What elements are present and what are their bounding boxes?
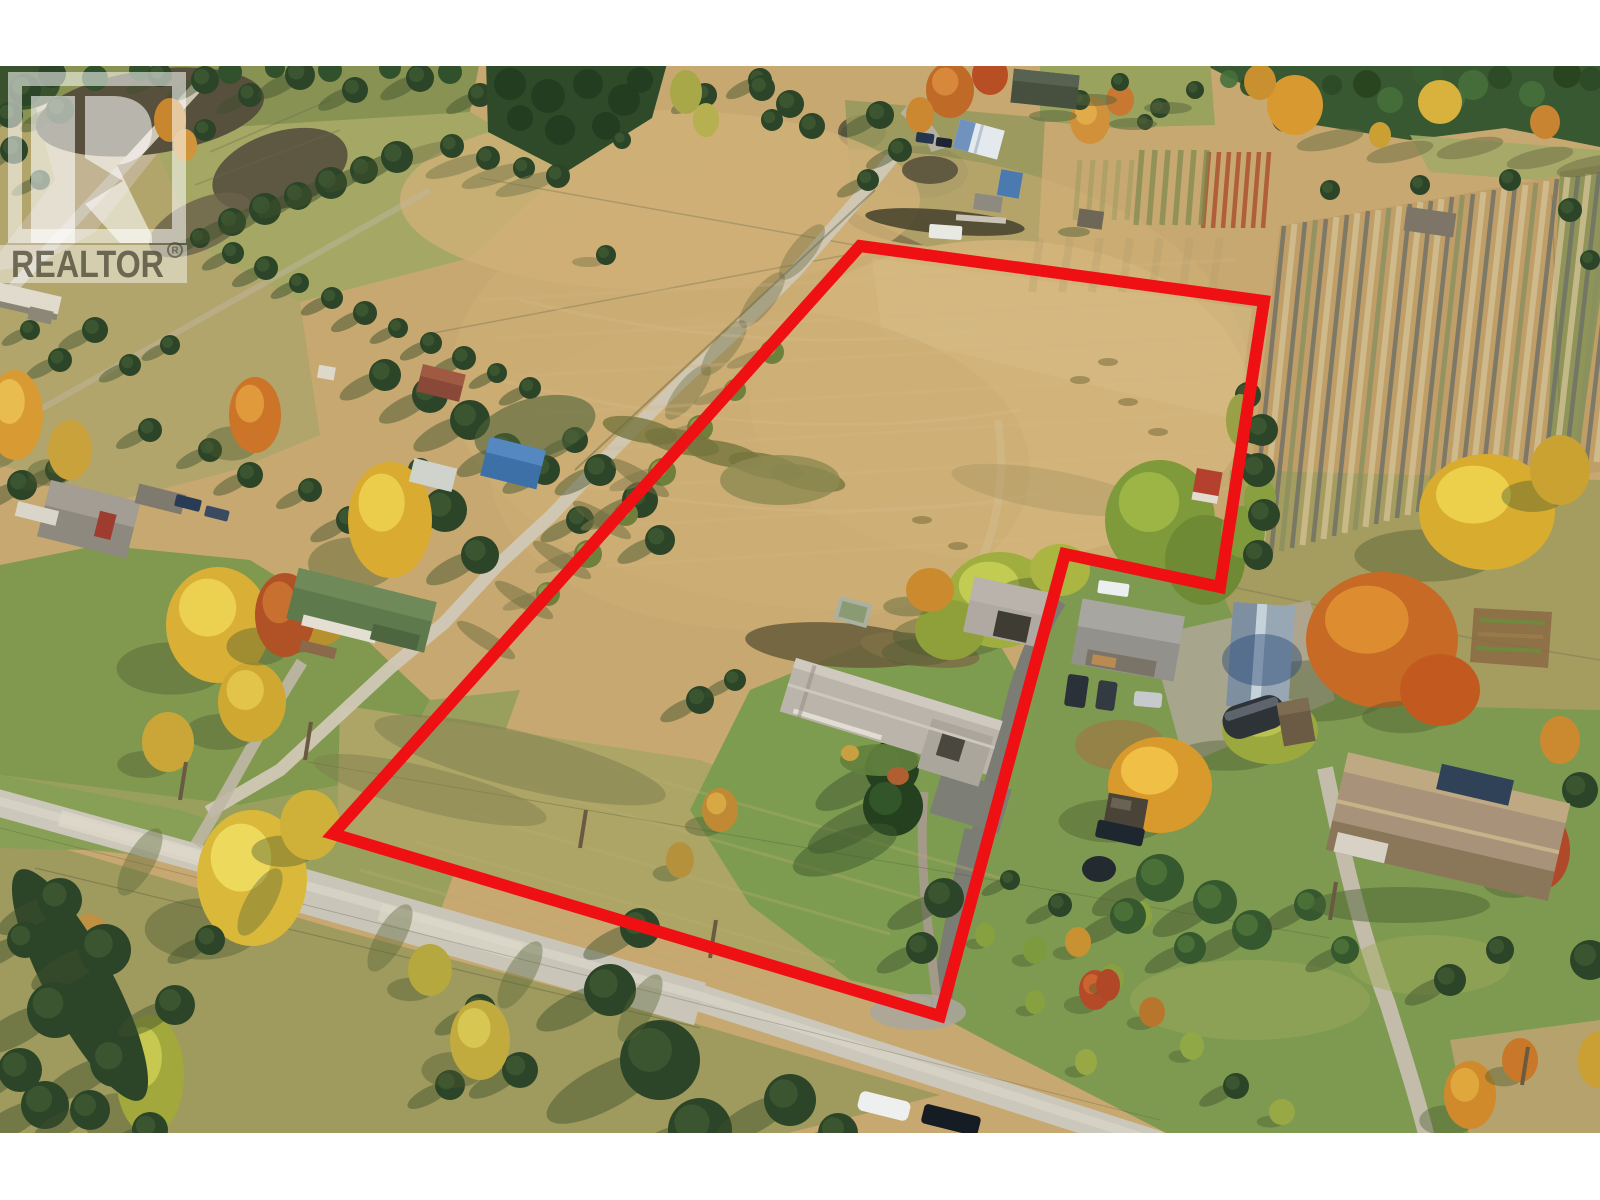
svg-text:REALTOR: REALTOR <box>11 244 164 286</box>
svg-text:R: R <box>171 246 179 257</box>
